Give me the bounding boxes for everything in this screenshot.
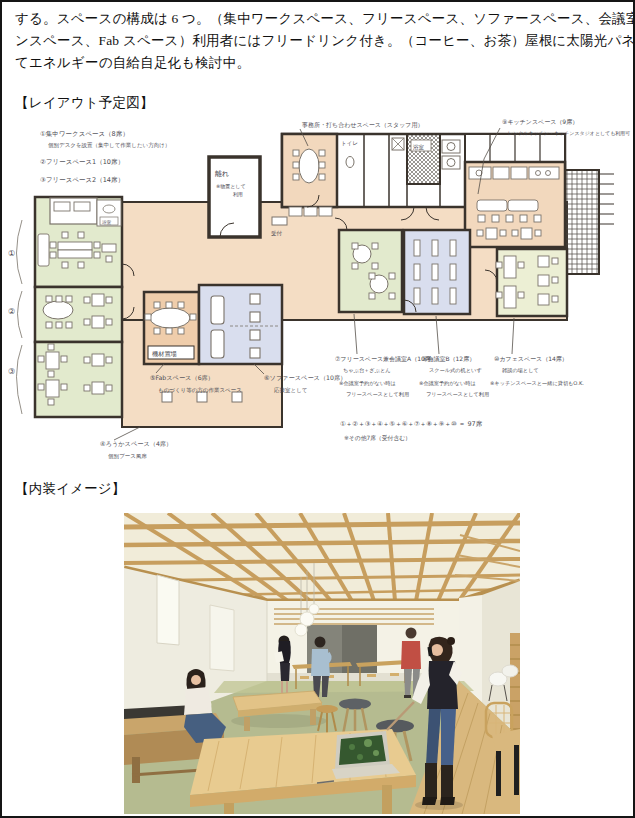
note-2: ②フリースペース1（10席） bbox=[40, 158, 124, 166]
room-cafe-space bbox=[496, 249, 567, 316]
door-white bbox=[210, 605, 234, 671]
room-fab-space: 機材置場 bbox=[144, 292, 199, 364]
room-office bbox=[282, 134, 337, 207]
interior-heading: 【内装イメージ】 bbox=[15, 480, 126, 498]
svg-text:利用: 利用 bbox=[233, 191, 243, 198]
label-reception: 受付 bbox=[271, 230, 283, 237]
label-bath: 浴室 bbox=[413, 144, 425, 151]
note-5a: ⑤Fabスペース（6席） bbox=[150, 374, 214, 382]
room-free-meeting-a bbox=[339, 230, 402, 312]
svg-text:スクール式の机といす: スクール式の机といす bbox=[429, 367, 482, 373]
interior-render-image bbox=[124, 513, 520, 814]
terrace-deck bbox=[565, 170, 614, 274]
floor-plan-sketch: トイレ 浴室 bbox=[2, 114, 635, 474]
note-4b: 個別ブース風席 bbox=[108, 453, 147, 460]
note-5b: ものづくり等の方の作業スペース bbox=[158, 387, 242, 394]
svg-text:雑談の場として: 雑談の場として bbox=[502, 367, 539, 374]
note-6b: 応接室として bbox=[274, 387, 307, 393]
room-free-space-1 bbox=[35, 287, 122, 342]
svg-text:②: ② bbox=[8, 307, 15, 316]
note-3: ③フリースペース2（14席） bbox=[40, 176, 124, 184]
window bbox=[157, 575, 179, 645]
note-office: 事務所・打ち合わせスペース（スタッフ用） bbox=[302, 121, 423, 129]
document-page: する。スペースの構成は 6 つ。（集中ワークスペース、フリースペース、ソファース… bbox=[0, 0, 635, 818]
intro-line-1: する。スペースの構成は 6 つ。（集中ワークスペース、フリースペース、ソファース… bbox=[15, 8, 623, 30]
svg-text:※物置として: ※物置として bbox=[216, 183, 246, 190]
note-4a: ④ろうかスペース（4席） bbox=[100, 440, 172, 448]
room-free-space-2 bbox=[35, 342, 122, 417]
svg-text:※会議室予約がない時は: ※会議室予約がない時は bbox=[339, 380, 396, 387]
label-equipment-storage: 機材置場 bbox=[152, 350, 178, 358]
room-focus-workspace: 浴室 bbox=[35, 197, 122, 287]
entrance-steps bbox=[289, 207, 332, 216]
note-10a: ⑩カフェスペース（14席） bbox=[494, 355, 568, 363]
mid-table bbox=[231, 691, 327, 731]
note-1a: ①集中ワークスペース（8席） bbox=[40, 130, 129, 138]
svg-text:フリースペースとして利用: フリースペースとして利用 bbox=[346, 391, 409, 398]
note-6a: ⑥ソファースペース（10席） bbox=[264, 374, 346, 382]
svg-text:③: ③ bbox=[8, 367, 15, 376]
note-total-2: ※その他7席（受付含む） bbox=[344, 434, 411, 442]
room-kitchen-space bbox=[465, 162, 565, 247]
svg-text:ちゃぶ台＋ざぶとん: ちゃぶ台＋ざぶとん bbox=[343, 367, 391, 374]
label-hanare: 離れ bbox=[215, 170, 229, 178]
intro-paragraph: する。スペースの構成は 6 つ。（集中ワークスペース、フリースペース、ソファース… bbox=[15, 8, 623, 74]
room-meeting-b bbox=[404, 230, 470, 314]
svg-text:①: ① bbox=[8, 249, 15, 258]
label-toilet: トイレ bbox=[341, 140, 358, 146]
note-8a: ⑧会議室B（12席） bbox=[422, 355, 475, 363]
note-9a: ⑨キッチンスペース（9席） bbox=[502, 118, 578, 126]
side-markers: ① ② ③ bbox=[8, 220, 22, 414]
svg-text:フリースペースとして利用: フリースペースとして利用 bbox=[426, 391, 489, 398]
room-sofa-space bbox=[199, 285, 282, 364]
note-1b: 個別デスクを設置（集中して作業したい方向け） bbox=[48, 142, 170, 149]
room-bath: 浴室 bbox=[407, 134, 440, 184]
note-total-1: ①＋②＋③＋④＋⑤＋⑥＋⑦＋⑧＋⑨＋⑩ ＝ 97席 bbox=[340, 420, 483, 428]
label-bath-small: 浴室 bbox=[102, 220, 112, 225]
note-9b: レンタルキッチン・キッチンスタジオとしても利用可 bbox=[508, 130, 630, 137]
layout-heading: 【レイアウト予定図】 bbox=[15, 94, 154, 112]
room-hanare: 離れ ※物置として 利用 bbox=[209, 157, 260, 237]
intro-line-2: ンスペース、Fab スペース）利用者にはフリードリンク付き。（コーヒー、お茶）屋… bbox=[15, 30, 623, 52]
intro-line-3: てエネルギーの自給自足化も検討中。 bbox=[15, 52, 623, 74]
svg-text:※会議室予約がない時は: ※会議室予約がない時は bbox=[419, 380, 476, 387]
svg-text:※キッチンスペースと一緒に貸切もO.K.: ※キッチンスペースと一緒に貸切もO.K. bbox=[490, 380, 584, 387]
